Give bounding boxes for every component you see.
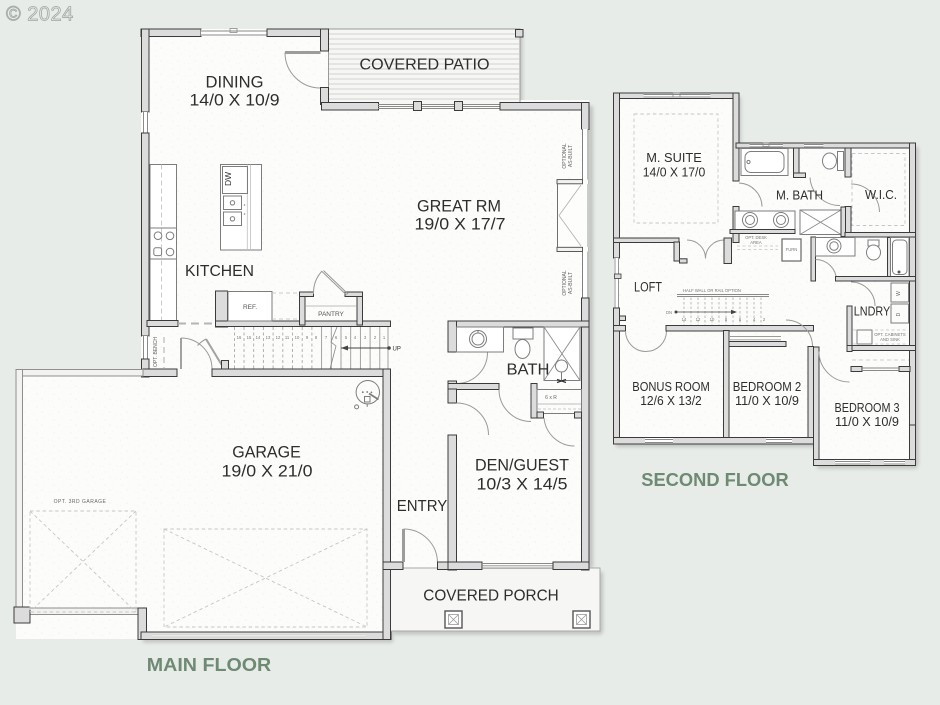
svg-text:11/0 X 10/9: 11/0 X 10/9 (835, 414, 899, 429)
svg-text:HALF WALL OR RAIL OPTION: HALF WALL OR RAIL OPTION (683, 288, 741, 293)
svg-text:12: 12 (276, 335, 281, 340)
svg-text:19/0 X 17/7: 19/0 X 17/7 (415, 216, 506, 234)
svg-text:AREA: AREA (750, 240, 762, 245)
svg-text:OPT. BENCH: OPT. BENCH (153, 337, 159, 367)
svg-text:LOFT: LOFT (634, 280, 662, 295)
svg-text:19/0 X 21/0: 19/0 X 21/0 (222, 463, 313, 481)
svg-text:10: 10 (295, 335, 300, 340)
svg-text:GARAGE: GARAGE (232, 444, 301, 462)
svg-text:BEDROOM 2: BEDROOM 2 (733, 379, 802, 394)
svg-text:DW: DW (223, 172, 233, 186)
svg-text:SECOND FLOOR: SECOND FLOOR (641, 470, 789, 490)
svg-text:LNDRY: LNDRY (854, 304, 891, 319)
svg-text:10/3 X 14/5: 10/3 X 14/5 (477, 476, 568, 494)
svg-text:W: W (896, 291, 902, 296)
svg-text:6 x R: 6 x R (545, 395, 557, 401)
svg-text:COVERED PORCH: COVERED PORCH (423, 588, 559, 605)
svg-text:W.I.C.: W.I.C. (865, 187, 897, 202)
svg-text:BONUS ROOM: BONUS ROOM (632, 379, 710, 394)
svg-text:D: D (896, 312, 902, 316)
svg-text:REF.: REF. (243, 304, 257, 311)
svg-text:11: 11 (285, 335, 290, 340)
svg-text:BEDROOM 3: BEDROOM 3 (835, 400, 900, 415)
svg-text:MAIN FLOOR: MAIN FLOOR (147, 655, 272, 675)
svg-text:OPT. 3RD GARAGE: OPT. 3RD GARAGE (54, 499, 107, 505)
svg-text:12/6 X 13/2: 12/6 X 13/2 (640, 393, 702, 408)
svg-text:ENTRY: ENTRY (397, 498, 448, 515)
svg-text:11/0 X 10/9: 11/0 X 10/9 (735, 393, 799, 408)
svg-text:FURN: FURN (786, 247, 798, 252)
svg-text:14/0 X 10/9: 14/0 X 10/9 (190, 92, 280, 110)
svg-text:PANTRY: PANTRY (318, 311, 344, 318)
svg-text:14/0 X 17/0: 14/0 X 17/0 (643, 165, 706, 180)
svg-text:10: 10 (710, 317, 715, 322)
svg-text:BATH: BATH (507, 362, 550, 379)
svg-text:UP: UP (393, 347, 401, 353)
svg-text:13: 13 (266, 335, 271, 340)
svg-text:AND SINK: AND SINK (880, 337, 900, 342)
svg-text:12: 12 (696, 317, 701, 322)
svg-text:COVERED PATIO: COVERED PATIO (360, 57, 490, 74)
svg-text:DEN/GUEST: DEN/GUEST (475, 457, 569, 475)
svg-text:15: 15 (247, 335, 252, 340)
svg-text:M. SUITE: M. SUITE (646, 150, 702, 165)
svg-text:AS-BUILT: AS-BUILT (568, 272, 574, 294)
svg-text:KITCHEN: KITCHEN (185, 263, 254, 280)
svg-text:14: 14 (256, 335, 261, 340)
svg-text:GREAT RM: GREAT RM (417, 198, 501, 216)
svg-text:DN: DN (666, 310, 672, 315)
svg-text:DINING: DINING (206, 73, 264, 91)
svg-text:14: 14 (682, 317, 687, 322)
svg-text:AS-BUILT: AS-BUILT (568, 145, 574, 167)
svg-text:© 2024: © 2024 (6, 4, 74, 26)
svg-text:M. BATH: M. BATH (776, 188, 823, 203)
svg-text:16: 16 (237, 335, 242, 340)
